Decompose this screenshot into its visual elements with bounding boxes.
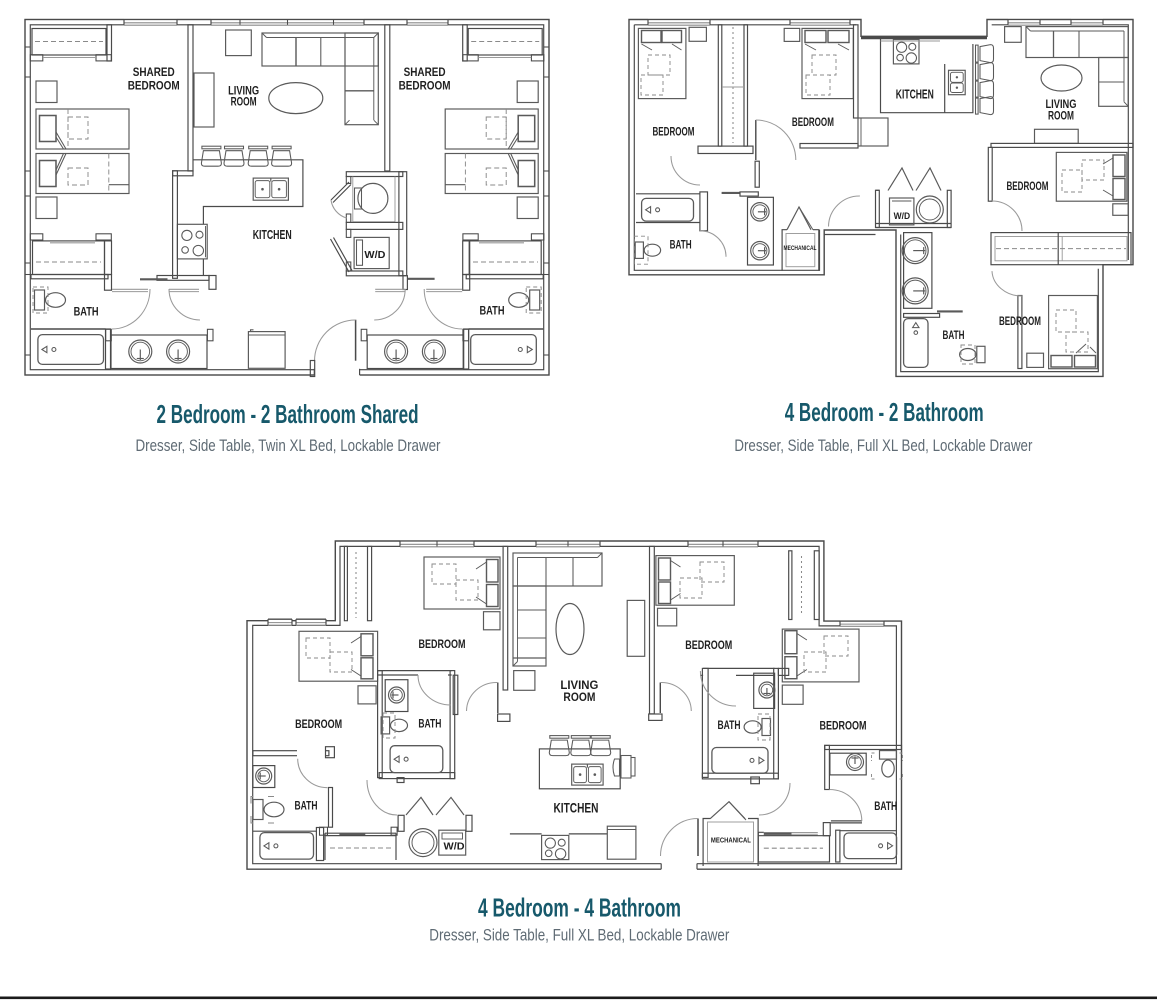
svg-text:ROOM: ROOM bbox=[231, 96, 257, 108]
svg-text:BEDROOM: BEDROOM bbox=[792, 117, 834, 129]
svg-text:BATH: BATH bbox=[480, 306, 505, 318]
svg-text:W/D: W/D bbox=[364, 250, 385, 261]
svg-text:ROOM: ROOM bbox=[563, 690, 595, 704]
svg-text:BATH: BATH bbox=[295, 801, 318, 813]
svg-text:W/D: W/D bbox=[444, 842, 465, 853]
svg-text:MECHANICAL: MECHANICAL bbox=[711, 836, 752, 845]
svg-text:BEDROOM: BEDROOM bbox=[685, 640, 732, 652]
svg-text:BEDROOM: BEDROOM bbox=[653, 127, 695, 139]
svg-text:4 Bedroom - 2 Bathroom: 4 Bedroom - 2 Bathroom bbox=[785, 397, 984, 427]
svg-text:2 Bedroom - 2 Bathroom Shared: 2 Bedroom - 2 Bathroom Shared bbox=[157, 399, 419, 429]
svg-text:Dresser, Side Table, Full XL B: Dresser, Side Table, Full XL Bed, Lockab… bbox=[429, 927, 729, 945]
svg-text:LIVING: LIVING bbox=[1046, 99, 1077, 111]
svg-text:KITCHEN: KITCHEN bbox=[896, 87, 934, 102]
svg-text:SHARED: SHARED bbox=[404, 67, 446, 79]
svg-text:BATH: BATH bbox=[874, 801, 897, 813]
svg-text:BEDROOM: BEDROOM bbox=[999, 316, 1041, 328]
svg-text:4 Bedroom - 4 Bathroom: 4 Bedroom - 4 Bathroom bbox=[478, 893, 681, 923]
svg-text:BATH: BATH bbox=[943, 330, 965, 342]
svg-text:BEDROOM: BEDROOM bbox=[399, 81, 451, 93]
svg-text:BATH: BATH bbox=[718, 720, 741, 732]
svg-text:KITCHEN: KITCHEN bbox=[253, 227, 292, 242]
svg-text:BATH: BATH bbox=[418, 719, 441, 731]
svg-text:SHARED: SHARED bbox=[133, 67, 175, 79]
svg-text:BEDROOM: BEDROOM bbox=[1007, 181, 1049, 193]
svg-text:BATH: BATH bbox=[74, 307, 99, 319]
svg-text:BEDROOM: BEDROOM bbox=[128, 81, 180, 93]
svg-text:BATH: BATH bbox=[670, 240, 692, 252]
svg-text:ROOM: ROOM bbox=[1048, 111, 1074, 123]
svg-text:BEDROOM: BEDROOM bbox=[295, 719, 342, 731]
svg-text:KITCHEN: KITCHEN bbox=[554, 801, 599, 816]
svg-text:Dresser, Side Table, Twin XL B: Dresser, Side Table, Twin XL Bed, Lockab… bbox=[136, 437, 441, 455]
svg-text:BEDROOM: BEDROOM bbox=[419, 639, 466, 651]
svg-text:BEDROOM: BEDROOM bbox=[820, 721, 867, 733]
svg-text:W/D: W/D bbox=[894, 211, 911, 222]
svg-text:MECHANICAL: MECHANICAL bbox=[784, 245, 817, 252]
svg-text:Dresser, Side Table, Full XL B: Dresser, Side Table, Full XL Bed, Lockab… bbox=[734, 437, 1032, 455]
